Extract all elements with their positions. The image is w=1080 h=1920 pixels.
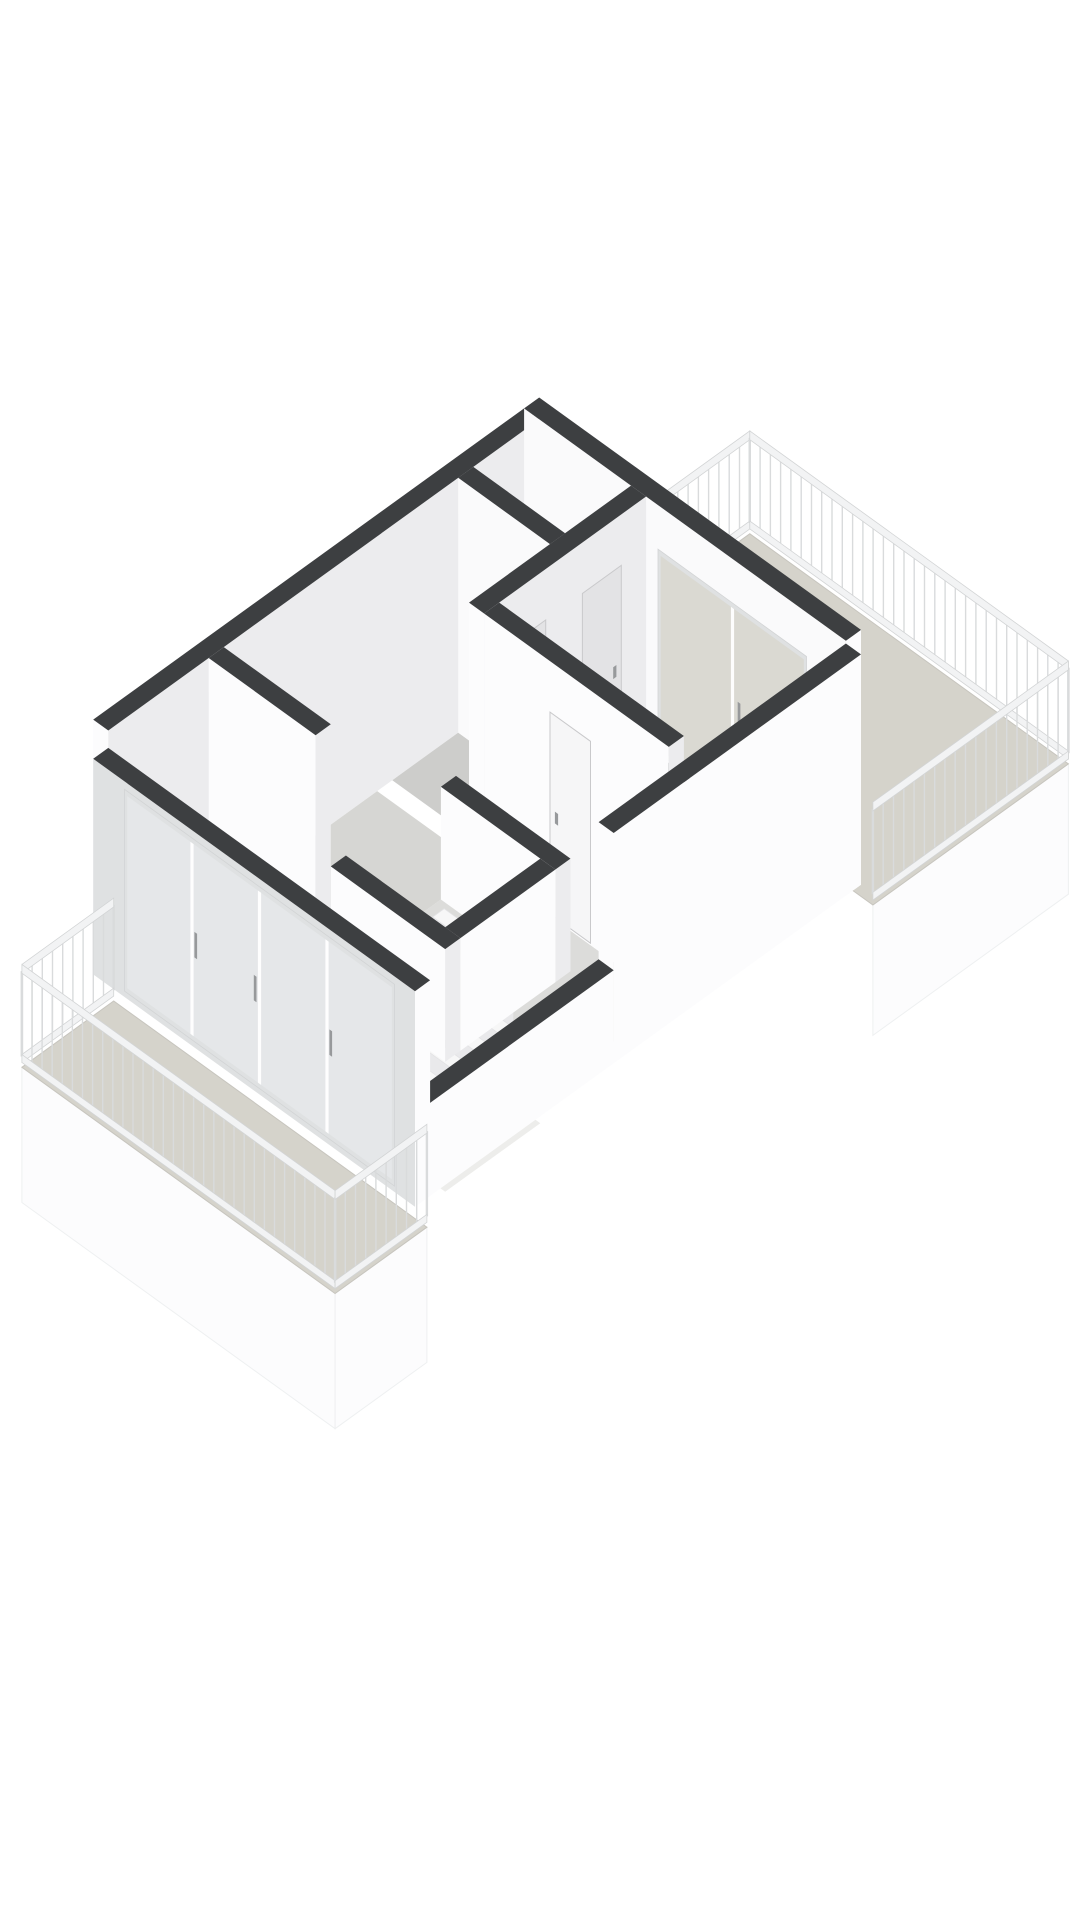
floorplan-stage xyxy=(0,0,1080,1920)
floorplan-3d-svg xyxy=(0,0,1080,1920)
page xyxy=(0,0,1080,1920)
